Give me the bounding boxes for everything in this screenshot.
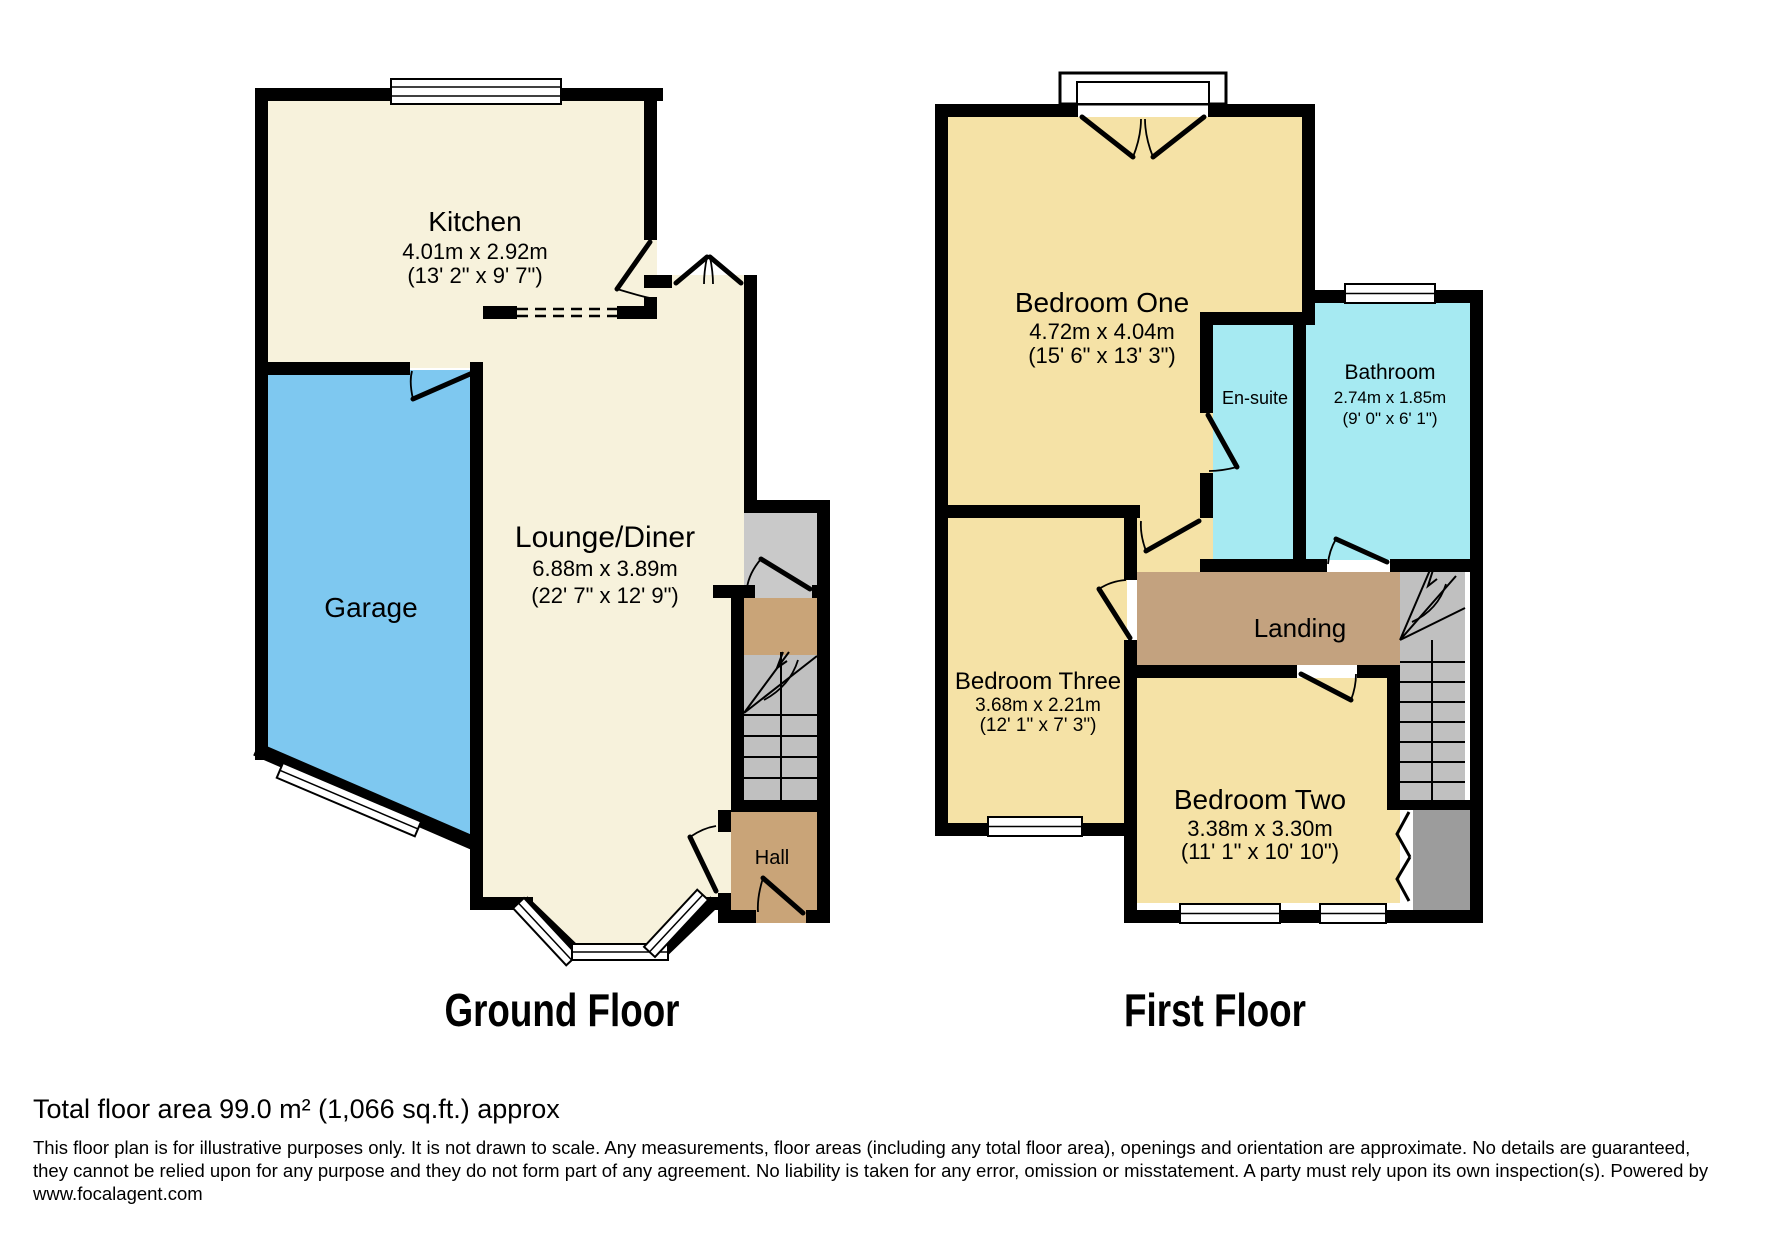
bedroom-two-dims: 3.38m x 3.30m <box>1187 816 1333 841</box>
ground-floor-title: Ground Floor <box>445 984 680 1036</box>
floorplan-svg: Kitchen 4.01m x 2.92m (13' 2" x 9' 7") G… <box>0 0 1771 1239</box>
bathroom-label: Bathroom <box>1344 361 1435 384</box>
bedroom-one-dims: 4.72m x 4.04m <box>1029 319 1175 344</box>
bedroom-two-window-right <box>1320 904 1386 923</box>
kitchen-window <box>391 79 561 104</box>
bedroom-one-dims-ft: (15' 6" x 13' 3") <box>1028 343 1176 368</box>
bedroom-two-window-left <box>1180 904 1280 923</box>
storage-floor <box>1413 810 1470 910</box>
first-floor-title: First Floor <box>1124 984 1306 1036</box>
bedroom-three-dims-ft: (12' 1" x 7' 3") <box>980 715 1097 736</box>
lounge-label: Lounge/Diner <box>515 521 695 554</box>
bedroom-three-dims: 3.68m x 2.21m <box>975 695 1101 716</box>
lounge-dims-ft: (22' 7" x 12' 9") <box>531 583 679 608</box>
bedroom-two-label: Bedroom Two <box>1174 784 1346 815</box>
bedroom-two-dims-ft: (11' 1" x 10' 10") <box>1181 839 1339 864</box>
kitchen-label: Kitchen <box>428 206 521 237</box>
bathroom-window <box>1345 284 1435 303</box>
bedroom-three-window <box>988 817 1082 836</box>
first-floor-plan: Bedroom One 4.72m x 4.04m (15' 6" x 13' … <box>935 73 1483 1036</box>
bathroom-floor <box>1306 303 1470 560</box>
bathroom-dims-ft: (9' 0" x 6' 1") <box>1342 409 1437 428</box>
disclaimer-line-2: they cannot be relied upon for any purpo… <box>33 1159 1708 1182</box>
disclaimer-line-3: www.focalagent.com <box>33 1182 1708 1205</box>
disclaimer-line-1: This floor plan is for illustrative purp… <box>33 1136 1708 1159</box>
bathroom-dims: 2.74m x 1.85m <box>1334 388 1446 407</box>
stair-base-floor <box>744 598 817 655</box>
lounge-dims: 6.88m x 3.89m <box>532 556 678 581</box>
landing-label: Landing <box>1254 613 1347 643</box>
bedroom-three-label: Bedroom Three <box>955 668 1121 695</box>
kitchen-dims: 4.01m x 2.92m <box>402 239 548 264</box>
bedroom-one-label: Bedroom One <box>1015 287 1189 318</box>
kitchen-dims-ft: (13' 2" x 9' 7") <box>407 263 542 288</box>
hall-label: Hall <box>755 847 789 869</box>
ground-floor-plan: Kitchen 4.01m x 2.92m (13' 2" x 9' 7") G… <box>255 79 830 1036</box>
garage-label: Garage <box>324 592 417 623</box>
ensuite-label: En-suite <box>1222 388 1288 408</box>
total-floor-area: Total floor area 99.0 m² (1,066 sq.ft.) … <box>33 1094 560 1125</box>
disclaimer: This floor plan is for illustrative purp… <box>33 1136 1708 1205</box>
